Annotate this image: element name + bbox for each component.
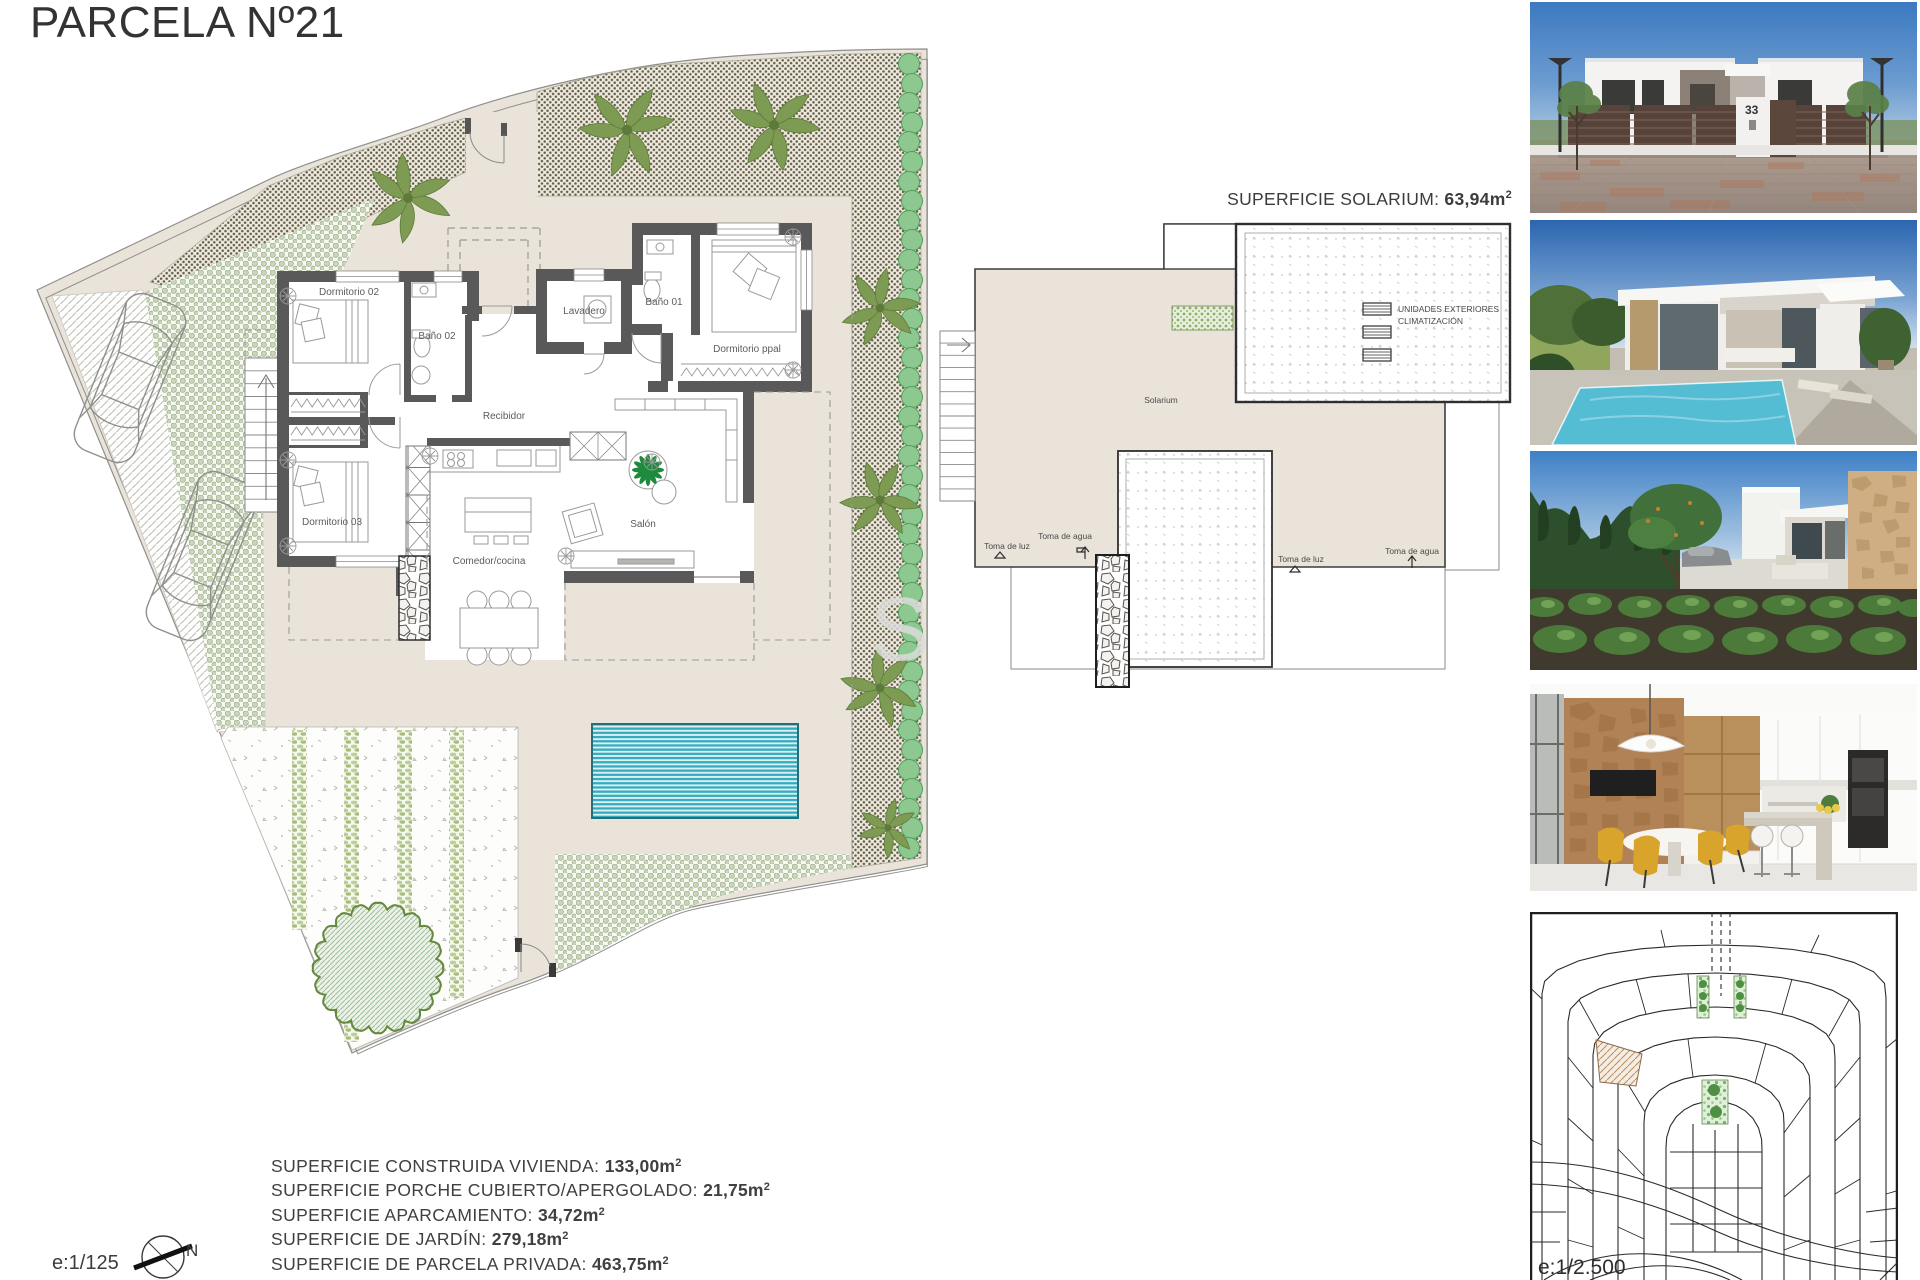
svg-text:33: 33 (1745, 103, 1759, 117)
svg-text:Toma de luz: Toma de luz (984, 541, 1030, 551)
svg-text:Dormitorio 03: Dormitorio 03 (302, 517, 362, 528)
svg-text:Dormitorio 02: Dormitorio 02 (319, 287, 379, 298)
svg-text:Toma de agua: Toma de agua (1385, 546, 1439, 556)
svg-text:N: N (186, 1241, 198, 1260)
svg-text:Recibidor: Recibidor (483, 411, 526, 422)
svg-text:Comedor/cocina: Comedor/cocina (453, 556, 526, 567)
svg-text:UNIDADES EXTERIORES: UNIDADES EXTERIORES (1398, 304, 1499, 314)
svg-text:Solarium: Solarium (1144, 395, 1178, 405)
svg-text:Baño 02: Baño 02 (418, 331, 456, 342)
svg-text:Salón: Salón (630, 519, 656, 530)
svg-text:CLIMATIZACIÓN: CLIMATIZACIÓN (1398, 316, 1463, 326)
svg-text:Dormitorio ppal: Dormitorio ppal (713, 344, 781, 355)
svg-text:S: S (870, 580, 930, 680)
svg-text:Toma de agua: Toma de agua (1038, 531, 1092, 541)
svg-text:Lavadero: Lavadero (563, 306, 605, 317)
svg-text:Baño 01: Baño 01 (645, 297, 683, 308)
svg-text:e:1/2.500: e:1/2.500 (1538, 1256, 1626, 1279)
svg-text:Toma de luz: Toma de luz (1278, 554, 1324, 564)
